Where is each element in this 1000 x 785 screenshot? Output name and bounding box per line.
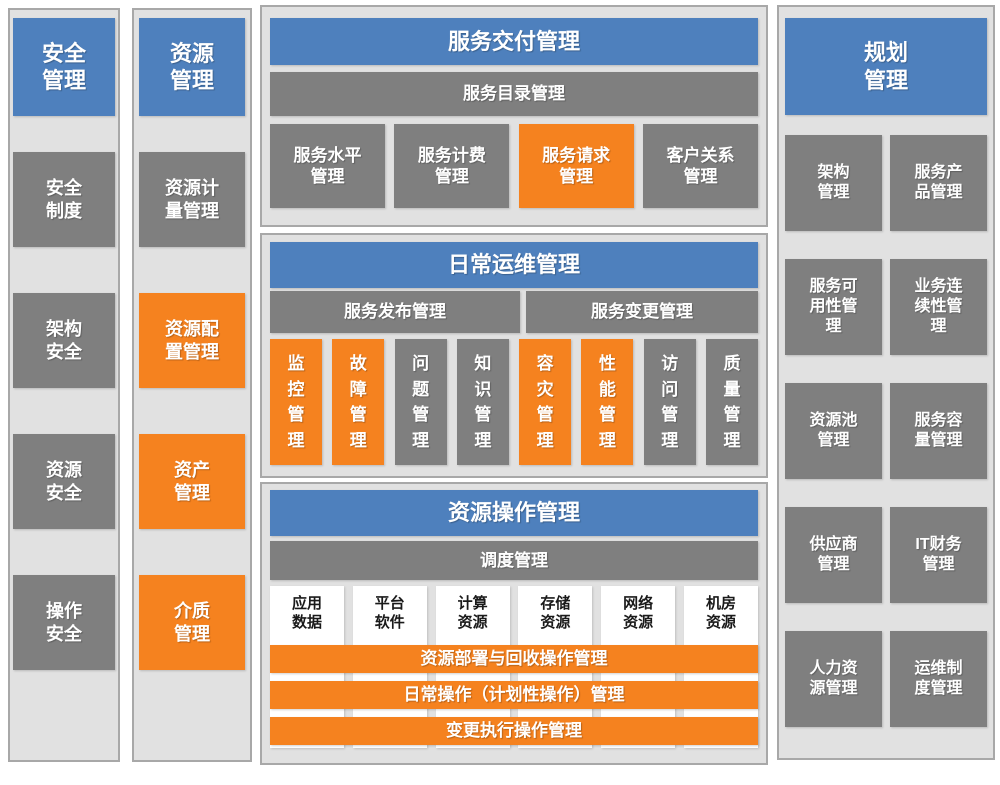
compute-resource-box: 计算 资源 [436, 586, 510, 641]
service-request-box: 服务请求 管理 [519, 124, 634, 208]
service-delivery-title: 服务交付管理 [270, 18, 758, 65]
security-item-resource: 资源 安全 [13, 434, 115, 529]
resource-mgmt-title: 资源 管理 [139, 18, 245, 116]
network-resource-box: 网络 资源 [601, 586, 675, 641]
scheduling-bar: 调度管理 [270, 541, 758, 580]
business-continuity-box: 业务连 续性管 理 [890, 259, 987, 355]
resource-item-metering: 资源计 量管理 [139, 152, 245, 247]
planning-row-4: 供应商 管理 IT财务 管理 [785, 507, 987, 603]
storage-resource-box: 存储 资源 [518, 586, 592, 641]
deploy-reclaim-bar: 资源部署与回收操作管理 [270, 645, 758, 673]
ops-policy-box: 运维制 度管理 [890, 631, 987, 727]
performance-box: 性 能 管 理 [581, 339, 633, 465]
service-capacity-box: 服务容 量管理 [890, 383, 987, 479]
service-level-box: 服务水平 管理 [270, 124, 385, 208]
service-delivery-row: 服务水平 管理 服务计费 管理 服务请求 管理 客户关系 管理 [270, 124, 758, 208]
security-item-architecture: 架构 安全 [13, 293, 115, 388]
service-product-box: 服务产 品管理 [890, 135, 987, 231]
planning-stack: 规划 管理 架构 管理 服务产 品管理 服务可 用性管 理 业务连 续性管 理 … [779, 7, 993, 755]
monitoring-box: 监 控 管 理 [270, 339, 322, 465]
resource-operation-title: 资源操作管理 [270, 490, 758, 536]
service-delivery-panel: 服务交付管理 服务目录管理 服务水平 管理 服务计费 管理 服务请求 管理 客户… [260, 5, 768, 227]
security-title: 安全 管理 [13, 18, 115, 116]
operations-items-row: 监 控 管 理 故 障 管 理 问 题 管 理 知 识 管 理 容 灾 管 理 … [270, 339, 758, 465]
daily-planned-ops-bar: 日常操作（计划性操作）管理 [270, 681, 758, 709]
resource-operation-panel: 资源操作管理 调度管理 应用 数据 平台 软件 计算 资源 存储 资源 网络 资… [260, 482, 768, 765]
quality-box: 质 量 管 理 [706, 339, 758, 465]
security-item-operation: 操作 安全 [13, 575, 115, 670]
change-execution-bar: 变更执行操作管理 [270, 717, 758, 745]
customer-relationship-box: 客户关系 管理 [643, 124, 758, 208]
planning-panel: 规划 管理 架构 管理 服务产 品管理 服务可 用性管 理 业务连 续性管 理 … [777, 5, 995, 760]
security-item-institution: 安全 制度 [13, 152, 115, 247]
service-release-bar: 服务发布管理 [270, 291, 520, 333]
service-availability-box: 服务可 用性管 理 [785, 259, 882, 355]
app-data-box: 应用 数据 [270, 586, 344, 641]
fault-box: 故 障 管 理 [332, 339, 384, 465]
security-panel: 安全 管理 安全 制度 架构 安全 资源 安全 操作 安全 [8, 8, 120, 762]
disaster-recovery-box: 容 灾 管 理 [519, 339, 571, 465]
supplier-mgmt-box: 供应商 管理 [785, 507, 882, 603]
resource-pool-box: 资源池 管理 [785, 383, 882, 479]
planning-title: 规划 管理 [785, 18, 987, 115]
knowledge-box: 知 识 管 理 [457, 339, 509, 465]
access-box: 访 问 管 理 [644, 339, 696, 465]
resource-item-configuration: 资源配 置管理 [139, 293, 245, 388]
operations-bars-row: 服务发布管理 服务变更管理 [270, 291, 758, 333]
resource-item-asset: 资产 管理 [139, 434, 245, 529]
planning-row-5: 人力资 源管理 运维制 度管理 [785, 631, 987, 727]
planning-row-2: 服务可 用性管 理 业务连 续性管 理 [785, 259, 987, 355]
daily-operations-title: 日常运维管理 [270, 242, 758, 288]
service-change-bar: 服务变更管理 [526, 291, 758, 333]
resource-mgmt-panel: 资源 管理 资源计 量管理 资源配 置管理 资产 管理 介质 管理 [132, 8, 252, 762]
daily-operations-panel: 日常运维管理 服务发布管理 服务变更管理 监 控 管 理 故 障 管 理 问 题… [260, 233, 768, 478]
datacenter-resource-box: 机房 资源 [684, 586, 758, 641]
it-finance-box: IT财务 管理 [890, 507, 987, 603]
planning-row-3: 资源池 管理 服务容 量管理 [785, 383, 987, 479]
problem-box: 问 题 管 理 [395, 339, 447, 465]
platform-software-box: 平台 软件 [353, 586, 427, 641]
hr-mgmt-box: 人力资 源管理 [785, 631, 882, 727]
resource-columns-area: 应用 数据 平台 软件 计算 资源 存储 资源 网络 资源 机房 资源 资源 [270, 586, 758, 748]
resource-item-media: 介质 管理 [139, 575, 245, 670]
service-billing-box: 服务计费 管理 [394, 124, 509, 208]
service-catalog-bar: 服务目录管理 [270, 72, 758, 116]
planning-row-1: 架构 管理 服务产 品管理 [785, 135, 987, 231]
architecture-mgmt-box: 架构 管理 [785, 135, 882, 231]
